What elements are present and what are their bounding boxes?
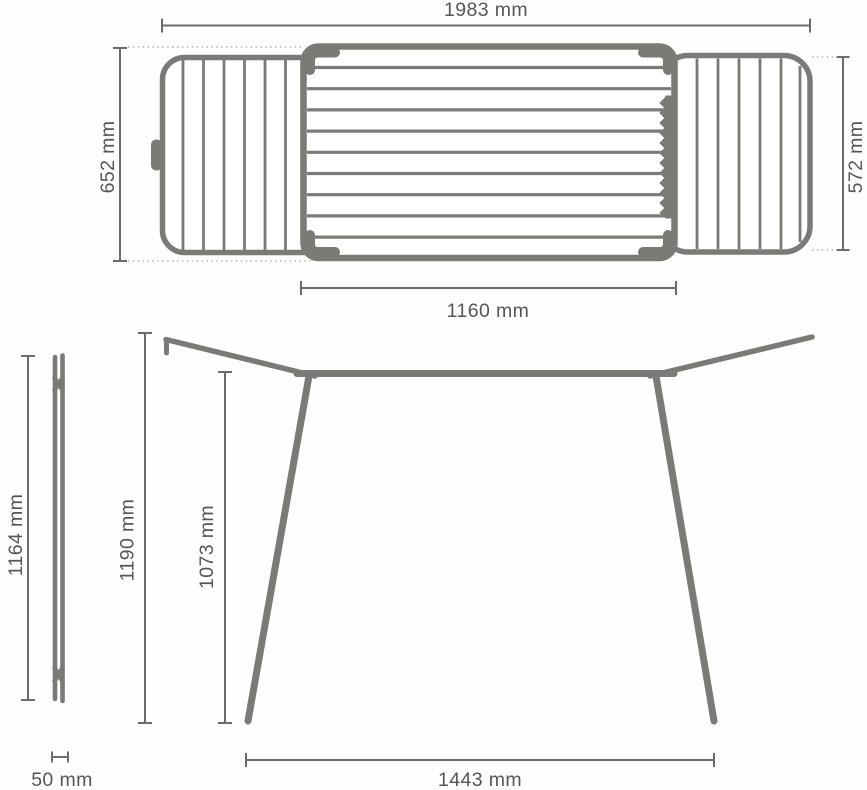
side-view: 1164 mm 50 mm — [5, 356, 93, 790]
dim-center-depth: 652 mm — [97, 48, 127, 261]
dimension-diagram: 1983 mm 652 mm 572 mm 1160 mm — [0, 0, 867, 790]
right-wing-arm — [650, 337, 812, 376]
wing-lock-knob — [152, 140, 162, 170]
dim-total-width-label: 1983 mm — [444, 0, 528, 21]
center-section — [304, 47, 675, 259]
left-wing — [152, 58, 325, 253]
dim-overall-height-label: 1190 mm — [117, 499, 139, 582]
folded-rack — [55, 356, 63, 702]
dim-folded-height-label: 1164 mm — [5, 494, 27, 577]
dim-leg-span-label: 1443 mm — [438, 769, 522, 790]
dim-folded-depth-label: 50 mm — [31, 769, 93, 790]
dim-overall-height: 1190 mm — [117, 333, 153, 723]
standing-rack — [166, 337, 812, 721]
right-wing — [662, 56, 810, 253]
right-leg — [656, 376, 714, 721]
dim-wing-depth: 572 mm — [837, 57, 867, 250]
dim-wing-depth-label: 572 mm — [845, 121, 867, 194]
dim-center-width: 1160 mm — [301, 281, 676, 322]
top-view: 1983 mm 652 mm 572 mm 1160 mm — [97, 0, 867, 322]
dim-folded-depth: 50 mm — [31, 752, 93, 790]
dim-rail-height: 1073 mm — [196, 372, 232, 723]
dim-folded-height: 1164 mm — [5, 356, 35, 700]
left-leg — [248, 376, 309, 721]
dim-center-width-label: 1160 mm — [447, 300, 530, 322]
dimension-diagram-canvas: 1983 mm 652 mm 572 mm 1160 mm — [0, 0, 867, 790]
dim-leg-span: 1443 mm — [246, 753, 714, 790]
front-view: 1190 mm 1073 mm 1443 mm — [117, 333, 813, 790]
left-wing-arm — [166, 340, 315, 377]
right-wing-frame — [662, 56, 810, 253]
dim-center-depth-label: 652 mm — [97, 121, 119, 194]
dim-rail-height-label: 1073 mm — [196, 505, 218, 589]
dim-total-width: 1983 mm — [162, 0, 810, 33]
